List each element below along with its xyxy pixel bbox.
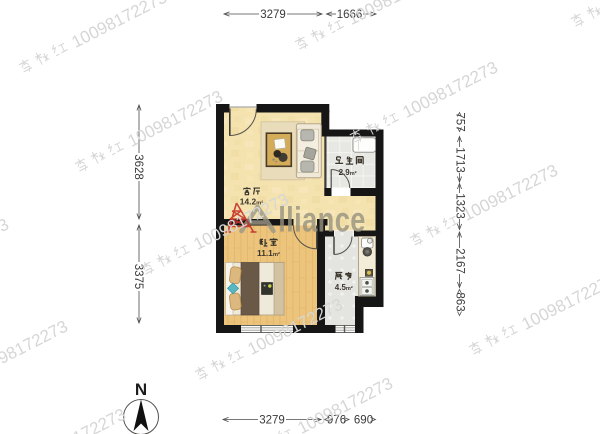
svg-text:863: 863 (453, 292, 465, 311)
svg-text:2167: 2167 (453, 248, 465, 274)
svg-text:1713: 1713 (453, 147, 465, 173)
svg-text:3628: 3628 (132, 154, 144, 180)
svg-text:N: N (135, 380, 147, 399)
svg-text:690: 690 (354, 415, 373, 427)
svg-text:757: 757 (453, 112, 465, 131)
svg-text:3279: 3279 (260, 9, 286, 21)
svg-text:3279: 3279 (259, 415, 285, 427)
svg-text:3375: 3375 (132, 264, 144, 290)
